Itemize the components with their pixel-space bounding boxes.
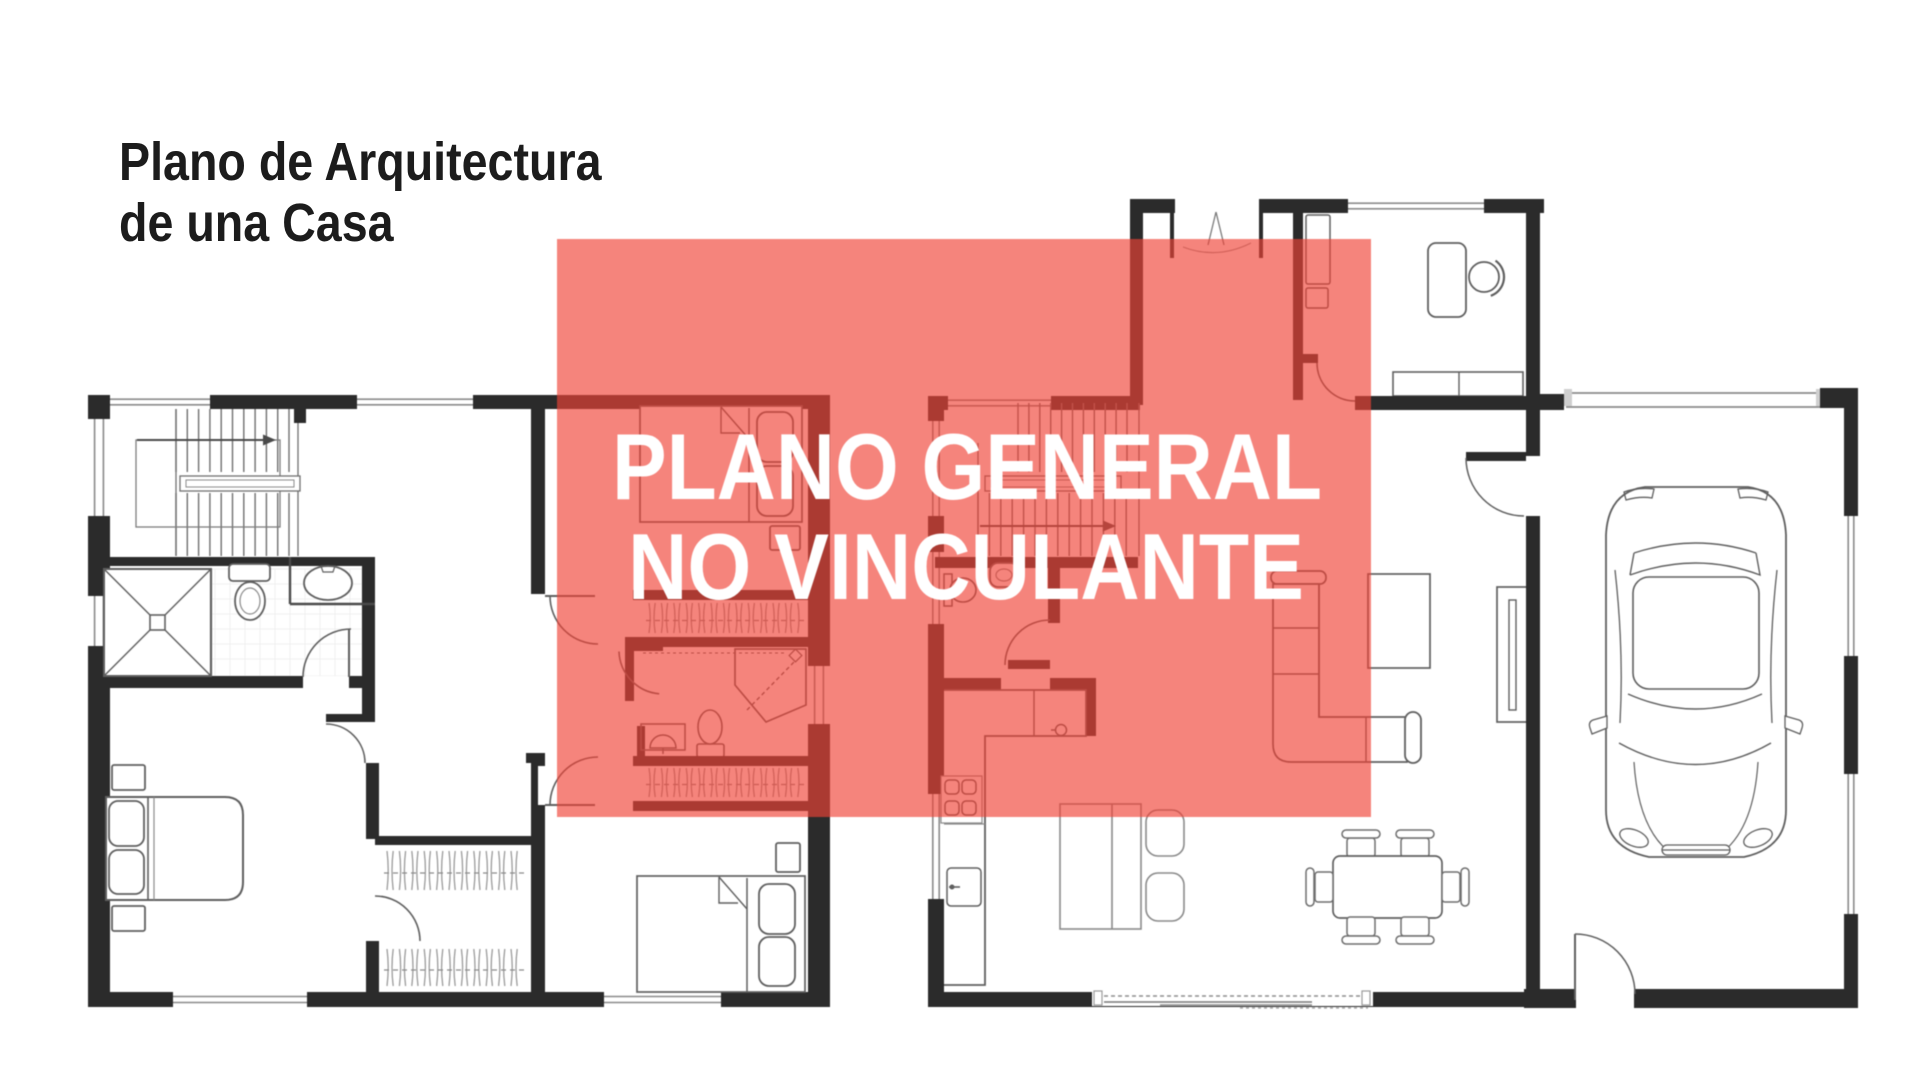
svg-text:PLANO GENERAL: PLANO GENERAL <box>612 414 1322 519</box>
svg-text:NO VINCULANTE: NO VINCULANTE <box>628 514 1304 619</box>
